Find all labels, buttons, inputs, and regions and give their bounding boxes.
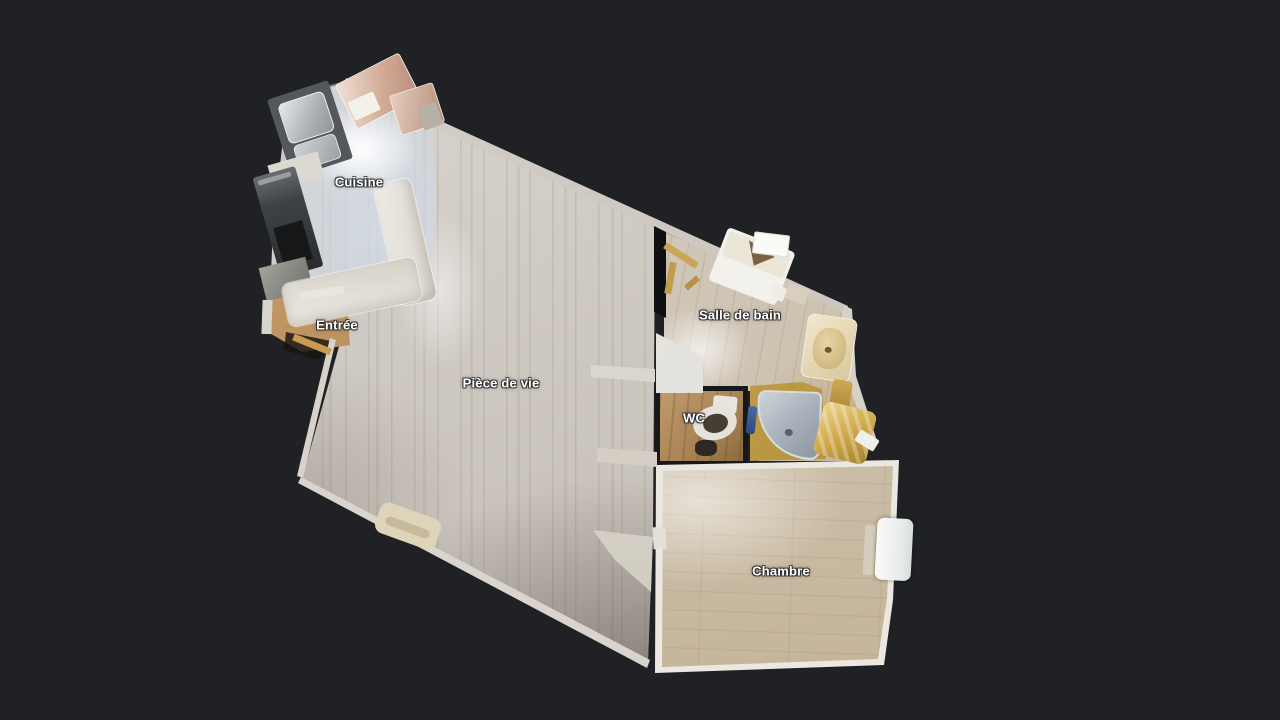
washing-machine-lid <box>752 231 790 257</box>
room-label-chambre: Chambre <box>752 565 810 578</box>
room-label-piece-de-vie: Pièce de vie <box>463 377 540 390</box>
room-label-salle-de-bain: Salle de bain <box>699 309 781 322</box>
living-kitchen-floor[interactable] <box>0 0 1280 720</box>
room-label-entree: Entrée <box>316 319 358 332</box>
bedroom-radiator-panel <box>874 517 913 581</box>
bathroom-sink <box>800 313 858 383</box>
wc-room[interactable] <box>655 386 748 466</box>
living-radiator-groove <box>384 515 430 539</box>
room-label-wc: WC <box>683 412 705 425</box>
shower-drain <box>785 429 793 436</box>
bedroom-doorway-notch <box>652 527 666 550</box>
room-label-cuisine: Cuisine <box>335 176 383 189</box>
toilet-base-shadow <box>695 440 717 456</box>
stove-trim <box>257 171 291 185</box>
toilet-bowl-inner <box>701 411 729 435</box>
entry-wall-piece <box>261 300 272 334</box>
bedroom-radiator <box>862 517 913 583</box>
floorplan-viewport[interactable]: Cuisine Entrée Pièce de vie Salle de bai… <box>0 0 1280 720</box>
